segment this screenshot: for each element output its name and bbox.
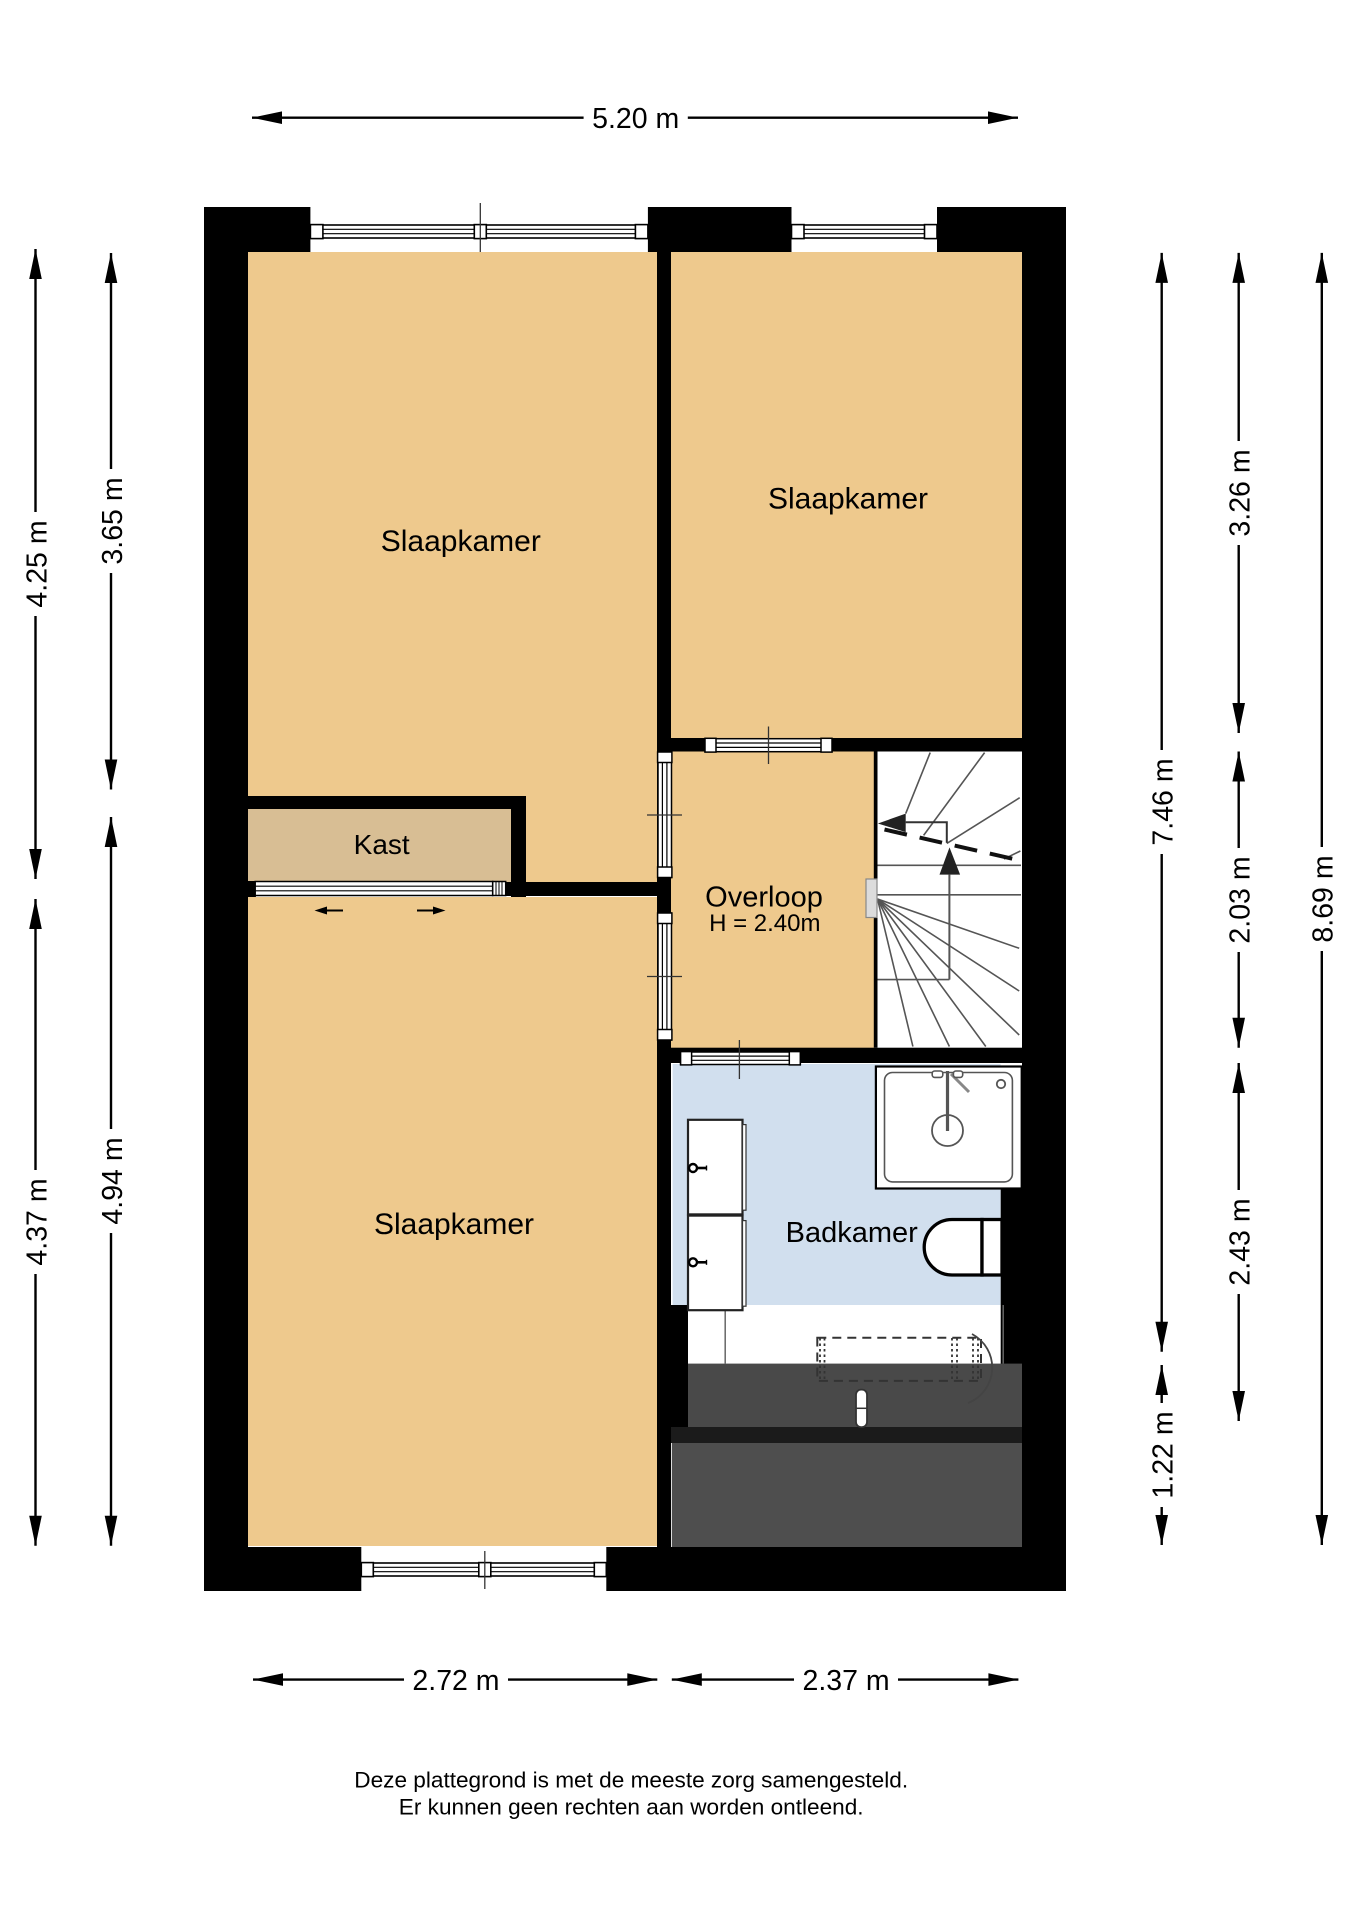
svg-text:H = 2.40m: H = 2.40m (709, 910, 820, 937)
svg-text:5.20 m: 5.20 m (592, 103, 679, 135)
svg-text:4.25 m: 4.25 m (21, 520, 53, 607)
svg-text:Er kunnen geen rechten aan wor: Er kunnen geen rechten aan worden ontlee… (399, 1794, 864, 1819)
svg-text:Slaapkamer: Slaapkamer (374, 1208, 534, 1241)
svg-text:8.69 m: 8.69 m (1308, 855, 1340, 942)
svg-text:Overloop: Overloop (705, 882, 823, 914)
svg-text:4.94 m: 4.94 m (97, 1137, 129, 1224)
svg-text:Deze plattegrond is met de mee: Deze plattegrond is met de meeste zorg s… (354, 1768, 908, 1793)
svg-text:7.46 m: 7.46 m (1148, 758, 1180, 845)
svg-text:2.37 m: 2.37 m (803, 1665, 890, 1697)
svg-text:Kast: Kast (354, 829, 410, 860)
svg-text:1.22 m: 1.22 m (1148, 1411, 1180, 1498)
svg-text:4.37 m: 4.37 m (21, 1178, 53, 1265)
svg-text:2.43 m: 2.43 m (1225, 1198, 1257, 1285)
svg-text:Slaapkamer: Slaapkamer (381, 525, 541, 558)
svg-text:Badkamer: Badkamer (786, 1217, 919, 1249)
svg-text:2.72 m: 2.72 m (412, 1665, 499, 1697)
svg-text:3.26 m: 3.26 m (1225, 449, 1257, 536)
svg-text:2.03 m: 2.03 m (1225, 856, 1257, 943)
svg-text:Slaapkamer: Slaapkamer (768, 483, 928, 516)
svg-text:3.65 m: 3.65 m (97, 477, 129, 564)
